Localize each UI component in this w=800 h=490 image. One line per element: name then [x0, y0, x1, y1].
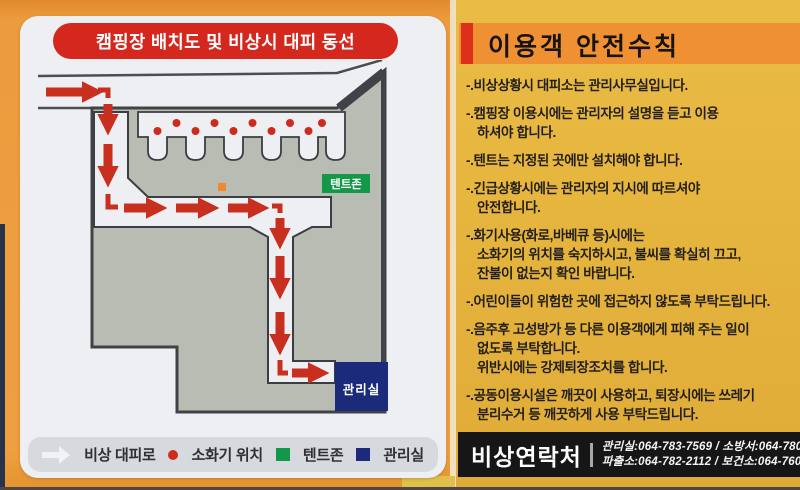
contact-line: 관리실:064-783-7569 / 소방서:064-780-9134	[602, 440, 800, 455]
rule-text: -.공동이용시설은 깨끗이 사용하고, 퇴장시에는 쓰레기	[466, 386, 798, 405]
fire-extinguisher-dot	[230, 127, 238, 135]
rule-text: 잔불이 없는지 확인 바랍니다.	[466, 264, 798, 283]
rule-text: -.텐트는 지정된 곳에만 설치해야 합니다.	[466, 151, 798, 170]
rule-text: -.음주후 고성방가 등 다른 이용객에게 피해 주는 일이	[466, 320, 798, 339]
rule-text: 분리수거 등 깨끗하게 사용 부탁드립니다.	[466, 405, 798, 424]
evacuation-map: 텐트존 관리실	[22, 60, 442, 422]
rule-text: 하셔야 합니다.	[466, 123, 798, 142]
contact-bar-title: 비상연락처	[471, 438, 582, 472]
safety-rule: -.어린이들이 위험한 곳에 접근하지 않도록 부탁드립니다.	[466, 292, 798, 311]
safety-rule: -.비상상황시 대피소는 관리사무실입니다.	[466, 76, 798, 95]
tent-zone-label: 텐트존	[330, 177, 362, 191]
contact-line: 파출소:064-782-2112 / 보건소:064-760-6151	[602, 455, 800, 470]
office-label: 관리실	[343, 382, 381, 397]
fire-extinguisher-dot	[173, 119, 181, 127]
sign-left-edge	[0, 224, 5, 490]
rule-text: 위반시에는 강제퇴장조치를 합니다.	[466, 358, 798, 377]
fire-extinguisher-dot	[192, 127, 200, 135]
emergency-contact-bar: 비상연락처 관리실:064-783-7569 / 소방서:064-780-913…	[458, 432, 800, 477]
rule-text: -.캠핑장 이용시에는 관리자의 설명을 듣고 이용	[466, 104, 798, 123]
safety-rule: -.텐트는 지정된 곳에만 설치해야 합니다.	[466, 151, 798, 170]
fire-extinguisher-dot	[318, 119, 326, 127]
rule-text: -.화기사용(화로,바베큐 등)시에는	[466, 226, 798, 245]
contact-divider	[590, 443, 593, 467]
rule-text: -.어린이들이 위험한 곳에 접근하지 않도록 부탁드립니다.	[466, 292, 798, 311]
rule-text: -.긴급상황시에는 관리자의 지시에 따르셔야	[466, 179, 798, 198]
rule-text: 소화기의 위치를 숙지하시고, 불씨를 확실히 끄고,	[466, 245, 798, 264]
fire-extinguisher-icon	[168, 450, 178, 460]
safety-rule: -.긴급상황시에는 관리자의 지시에 따르셔야 안전합니다.	[466, 179, 798, 217]
rules-title-accent	[461, 23, 473, 64]
rule-text: 안전합니다.	[466, 198, 798, 217]
external-road-line	[38, 60, 382, 76]
fire-extinguisher-dot	[286, 119, 294, 127]
legend-label-tent-zone: 텐트존	[303, 444, 344, 465]
poi-marker	[218, 183, 226, 191]
tent-zone-icon	[276, 448, 290, 461]
fire-extinguisher-dot	[249, 119, 257, 127]
safety-rule: -.공동이용시설은 깨끗이 사용하고, 퇴장시에는 쓰레기 분리수거 등 깨끗하…	[466, 386, 798, 424]
safety-rule: -.캠핑장 이용시에는 관리자의 설명을 듣고 이용 하셔야 합니다.	[466, 104, 798, 142]
safety-rules-panel: 이용객 안전수칙 -.비상상황시 대피소는 관리사무실입니다. -.캠핑장 이용…	[455, 0, 800, 490]
rules-title: 이용객 안전수칙	[488, 27, 680, 63]
map-card: 캠핑장 배치도 및 비상시 대피 동선	[20, 16, 446, 478]
rule-text: -.비상상황시 대피소는 관리사무실입니다.	[466, 76, 798, 95]
office-icon	[356, 448, 370, 461]
legend-label-evacuation-route: 비상 대피로	[84, 444, 155, 465]
evacuation-route-icon	[42, 446, 71, 464]
safety-rule: -.음주후 고성방가 등 다른 이용객에게 피해 주는 일이 없도록 부탁합니다…	[466, 320, 798, 377]
evacuation-route-elbow	[98, 90, 108, 98]
legend-label-fire-extinguisher: 소화기 위치	[191, 444, 262, 465]
rule-text: 없도록 부탁합니다.	[466, 339, 798, 358]
fire-extinguisher-dot	[268, 127, 276, 135]
fire-extinguisher-dot	[305, 127, 313, 135]
fire-extinguisher-dot	[154, 127, 162, 135]
map-title: 캠핑장 배치도 및 비상시 대피 동선	[53, 23, 398, 59]
fire-extinguisher-dot	[211, 119, 219, 127]
safety-rule: -.화기사용(화로,바베큐 등)시에는 소화기의 위치를 숙지하시고, 불씨를 …	[466, 226, 798, 283]
rules-list: -.비상상황시 대피소는 관리사무실입니다. -.캠핑장 이용시에는 관리자의 …	[466, 76, 798, 433]
map-legend: 비상 대피로 소화기 위치 텐트존 관리실	[28, 437, 438, 472]
legend-label-office: 관리실	[383, 444, 424, 465]
contact-numbers: 관리실:064-783-7569 / 소방서:064-780-9134 파출소:…	[602, 440, 800, 470]
